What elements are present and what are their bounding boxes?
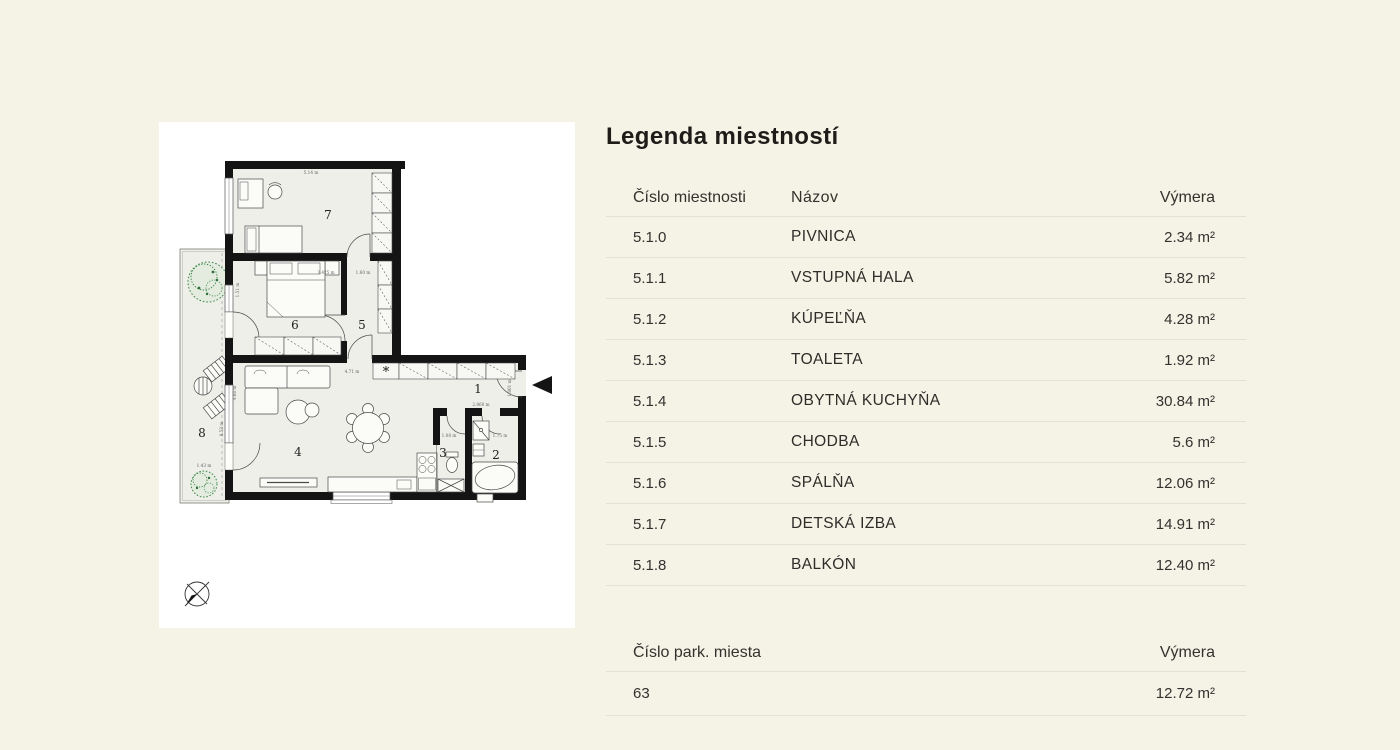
- dimension-label: 1.51 m: [235, 283, 240, 298]
- header-room-name: Názov: [791, 189, 1016, 207]
- tree-icon: [188, 262, 228, 302]
- table-row: 5.1.2KÚPEĽŇA4.28 m²: [606, 299, 1246, 340]
- legend-section: Legenda miestností Číslo miestnosti Názo…: [606, 123, 1246, 716]
- room-number-cell: 5.1.8: [606, 557, 791, 574]
- dimension-label: 8.53 m: [219, 422, 224, 437]
- header-room-number: Číslo miestnosti: [606, 189, 791, 207]
- rooms-table-header: Číslo miestnosti Názov Výmera: [606, 181, 1246, 217]
- table-row: 5.1.3TOALETA1.92 m²: [606, 340, 1246, 381]
- rooms-table-body: 5.1.0PIVNICA2.34 m²5.1.1VSTUPNÁ HALA5.82…: [606, 217, 1246, 586]
- table-row: 5.1.4OBYTNÁ KUCHYŇA30.84 m²: [606, 381, 1246, 422]
- room-name-cell: TOALETA: [791, 351, 1016, 369]
- room-area-cell: 30.84 m²: [1016, 393, 1246, 410]
- room-number-label: 3: [439, 446, 447, 460]
- room-number-label: 1: [474, 382, 482, 396]
- dimension-label: 1.801 m: [507, 379, 512, 396]
- room-name-cell: VSTUPNÁ HALA: [791, 269, 1016, 287]
- parking-area-cell: 12.72 m²: [1016, 685, 1246, 702]
- room-area-cell: 4.28 m²: [1016, 311, 1246, 328]
- parking-table-header: Číslo park. miesta Výmera: [606, 638, 1246, 672]
- parking-table: Číslo park. miesta Výmera 6312.72 m²: [606, 638, 1246, 716]
- closet-marker-asterisk: *: [383, 365, 390, 380]
- dimension-label: 1.60 m: [356, 270, 371, 275]
- room-name-cell: BALKÓN: [791, 556, 1016, 574]
- table-row: 6312.72 m²: [606, 672, 1246, 716]
- header-parking-number: Číslo park. miesta: [606, 644, 1016, 662]
- washing-machine-icon: [438, 479, 464, 492]
- toilet-icon: [446, 452, 458, 473]
- header-room-area: Výmera: [1016, 189, 1246, 207]
- bed-single-icon: [245, 226, 302, 253]
- entry-arrow-icon: [532, 376, 552, 394]
- room-name-cell: DETSKÁ IZBA: [791, 515, 1016, 533]
- room-name-cell: KÚPEĽŇA: [791, 310, 1016, 328]
- parking-number-cell: 63: [606, 685, 1016, 702]
- room-number-label: 4: [294, 445, 302, 459]
- sink-icon: [473, 444, 484, 456]
- dimension-label: 4.71 m: [345, 369, 360, 374]
- balcony-table-icon: [194, 377, 212, 395]
- room-name-cell: CHODBA: [791, 433, 1016, 451]
- room-number-cell: 5.1.1: [606, 270, 791, 287]
- room-name-cell: PIVNICA: [791, 228, 1016, 246]
- dimension-label: 1.43 m: [197, 463, 212, 468]
- room-number-cell: 5.1.4: [606, 393, 791, 410]
- table-row: 5.1.5CHODBA5.6 m²: [606, 422, 1246, 463]
- table-row: 5.1.7DETSKÁ IZBA14.91 m²: [606, 504, 1246, 545]
- parking-table-body: 6312.72 m²: [606, 672, 1246, 716]
- room-number-label: 2: [492, 448, 500, 462]
- page-title: Legenda miestností: [606, 123, 1246, 151]
- shower-icon: [473, 421, 489, 440]
- table-row: 5.1.0PIVNICA2.34 m²: [606, 217, 1246, 258]
- room-number-cell: 5.1.0: [606, 229, 791, 246]
- room-number-label: 7: [324, 208, 332, 222]
- tree-icon: [191, 471, 217, 497]
- floorplan-panel: 76541328* 5.14 m3.425 m1.60 m1.51 m4.71 …: [159, 122, 575, 628]
- room-number-label: 5: [358, 318, 366, 332]
- dimension-label: 2.860 m: [472, 402, 489, 407]
- room-name-cell: OBYTNÁ KUCHYŇA: [791, 392, 1016, 410]
- room-number-cell: 5.1.2: [606, 311, 791, 328]
- dimension-label: 5.14 m: [304, 170, 319, 175]
- dimension-label: 3.425 m: [317, 270, 334, 275]
- room-area-cell: 5.82 m²: [1016, 270, 1246, 287]
- room-name-cell: SPÁLŇA: [791, 474, 1016, 492]
- header-parking-area: Výmera: [1016, 644, 1246, 662]
- dimension-label: 1.75 m: [493, 433, 508, 438]
- dimension-label: 1.08 m: [442, 433, 457, 438]
- table-row: 5.1.1VSTUPNÁ HALA5.82 m²: [606, 258, 1246, 299]
- room-number-cell: 5.1.7: [606, 516, 791, 533]
- room-number-cell: 5.1.3: [606, 352, 791, 369]
- room-number-label: 6: [291, 318, 299, 332]
- desk-icon: [238, 179, 263, 208]
- room-area-cell: 5.6 m²: [1016, 434, 1246, 451]
- rooms-table: Číslo miestnosti Názov Výmera 5.1.0PIVNI…: [606, 181, 1246, 586]
- table-row: 5.1.8BALKÓN12.40 m²: [606, 545, 1246, 586]
- tv-bench-icon: [260, 478, 317, 487]
- room-area-cell: 12.06 m²: [1016, 475, 1246, 492]
- dimension-label: 4.68 m: [232, 386, 237, 401]
- room-area-cell: 12.40 m²: [1016, 557, 1246, 574]
- room-area-cell: 14.91 m²: [1016, 516, 1246, 533]
- room-number-cell: 5.1.6: [606, 475, 791, 492]
- table-row: 5.1.6SPÁLŇA12.06 m²: [606, 463, 1246, 504]
- floorplan-svg: 76541328* 5.14 m3.425 m1.60 m1.51 m4.71 …: [159, 122, 575, 628]
- room-number-label: 8: [198, 426, 206, 440]
- room-area-cell: 1.92 m²: [1016, 352, 1246, 369]
- compass-icon: [185, 582, 209, 606]
- room-number-cell: 5.1.5: [606, 434, 791, 451]
- room-area-cell: 2.34 m²: [1016, 229, 1246, 246]
